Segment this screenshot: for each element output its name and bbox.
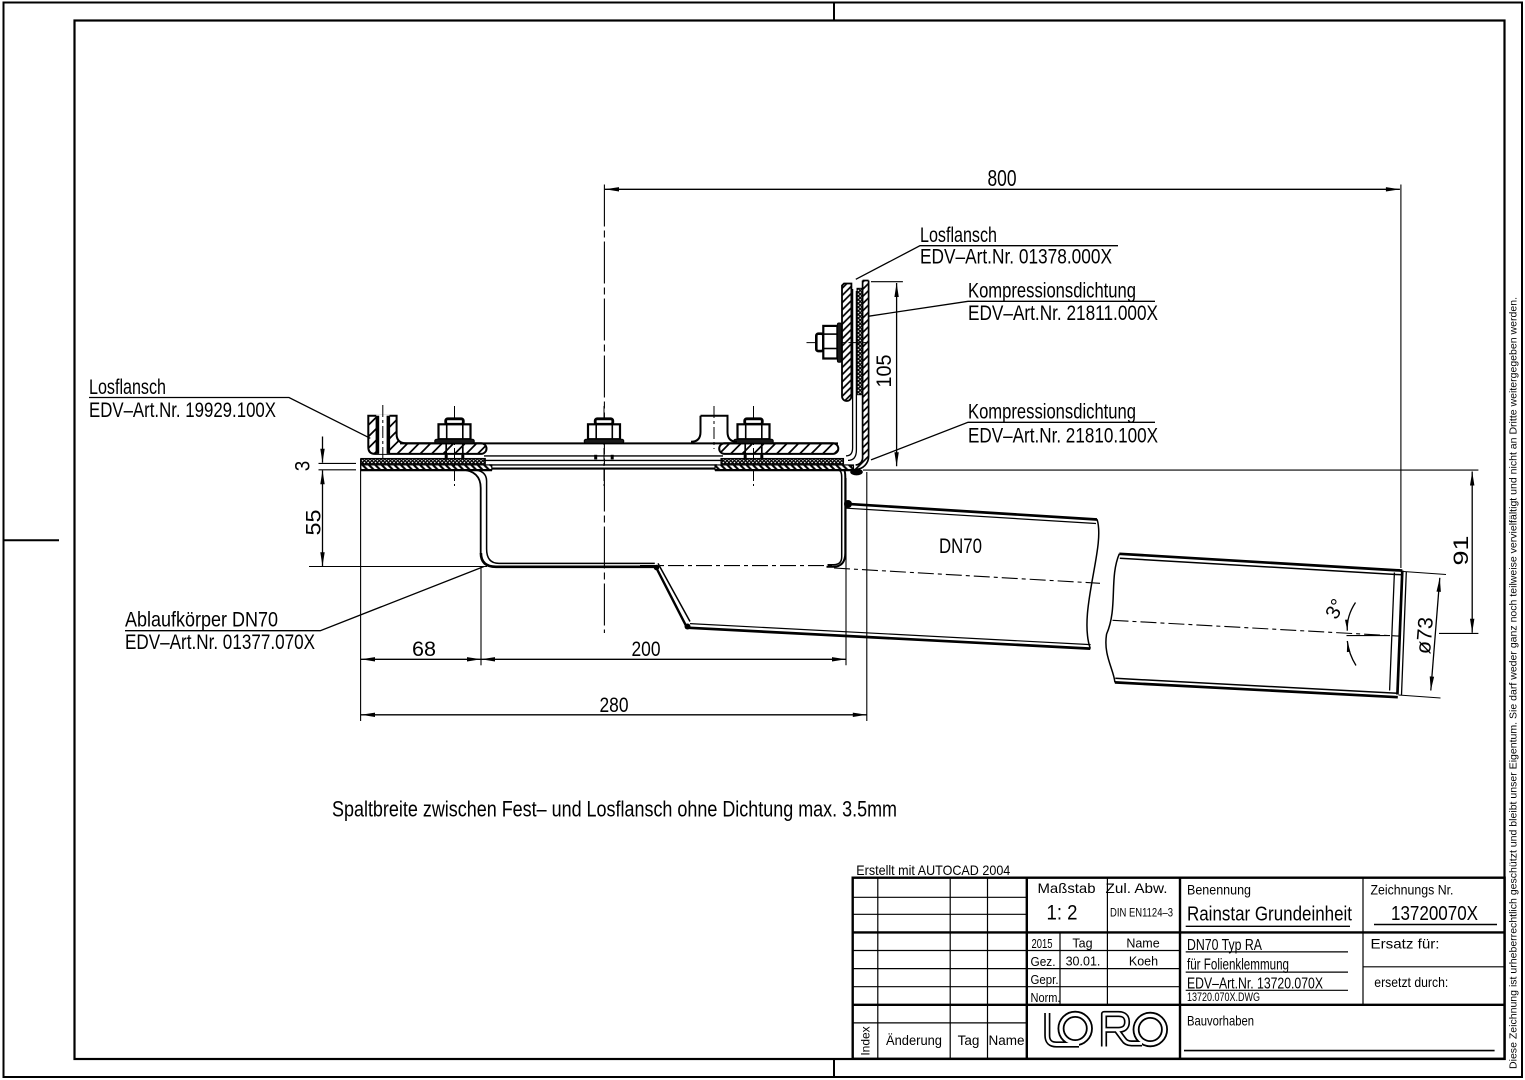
- svg-text:Tag: Tag: [1072, 936, 1092, 950]
- svg-text:Maßstab: Maßstab: [1038, 880, 1096, 896]
- svg-text:DN70 Typ RA: DN70 Typ RA: [1187, 937, 1262, 954]
- svg-text:2015: 2015: [1032, 936, 1053, 951]
- svg-text:Zul. Abw.: Zul. Abw.: [1106, 880, 1168, 896]
- svg-text:Losflansch: Losflansch: [89, 376, 166, 399]
- svg-text:DIN EN1124–3: DIN EN1124–3: [1110, 906, 1173, 920]
- svg-text:Rainstar Grundeinheit: Rainstar Grundeinheit: [1187, 904, 1352, 926]
- svg-text:105: 105: [873, 355, 896, 388]
- svg-text:1: 2: 1: 2: [1047, 902, 1078, 925]
- svg-text:Spaltbreite zwischen Fest–: Spaltbreite zwischen Fest– und Losflansc…: [332, 797, 897, 822]
- svg-text:Norm.: Norm.: [1031, 991, 1061, 1005]
- svg-text:Ersatz für:: Ersatz für:: [1371, 936, 1440, 952]
- svg-text:Losflansch: Losflansch: [920, 224, 997, 247]
- svg-text:68: 68: [412, 638, 436, 661]
- svg-text:EDV–Art.Nr. 21810.100X: EDV–Art.Nr. 21810.100X: [968, 424, 1158, 447]
- svg-text:Ablaufkörper DN70: Ablaufkörper DN70: [125, 609, 278, 632]
- svg-text:13720.070X.DWG: 13720.070X.DWG: [1187, 990, 1260, 1004]
- svg-text:Erstellt mit AUTOCAD 2004: Erstellt mit AUTOCAD 2004: [856, 862, 1010, 878]
- svg-text:für Folienklemmung: für Folienklemmung: [1187, 957, 1289, 974]
- svg-text:Gepr.: Gepr.: [1031, 973, 1059, 987]
- svg-text:Kompressionsdichtung: Kompressionsdichtung: [968, 280, 1136, 303]
- svg-text:Benennung: Benennung: [1187, 882, 1251, 898]
- svg-text:ersetzt durch:: ersetzt durch:: [1374, 974, 1448, 990]
- svg-text:Gez.: Gez.: [1031, 955, 1056, 969]
- svg-text:DN70: DN70: [939, 535, 982, 558]
- svg-text:200: 200: [632, 638, 661, 661]
- svg-text:EDV–Art.Nr. 01378.000X: EDV–Art.Nr. 01378.000X: [920, 246, 1112, 269]
- svg-text:Zeichnungs Nr.: Zeichnungs Nr.: [1371, 882, 1454, 898]
- svg-text:Diese Zeichnung ist urheberrec: Diese Zeichnung ist urheberrechtlich ges…: [1508, 297, 1520, 1069]
- svg-text:280: 280: [600, 694, 629, 717]
- svg-text:Änderung: Änderung: [886, 1033, 942, 1048]
- svg-text:EDV–Art.Nr. 19929.100X: EDV–Art.Nr. 19929.100X: [89, 399, 276, 422]
- svg-text:3: 3: [292, 461, 315, 472]
- svg-text:55: 55: [303, 510, 326, 536]
- svg-text:ø73: ø73: [1412, 616, 1438, 655]
- svg-text:30.01.: 30.01.: [1066, 954, 1101, 968]
- svg-text:Tag: Tag: [958, 1033, 980, 1048]
- svg-text:Kompressionsdichtung: Kompressionsdichtung: [968, 400, 1136, 423]
- svg-text:800: 800: [988, 165, 1017, 191]
- svg-text:13720070X: 13720070X: [1391, 903, 1478, 925]
- svg-text:Name: Name: [1126, 936, 1159, 950]
- svg-text:Bauvorhaben: Bauvorhaben: [1187, 1013, 1254, 1029]
- svg-text:Index: Index: [859, 1026, 873, 1055]
- svg-text:EDV–Art.Nr. 21811.000X: EDV–Art.Nr. 21811.000X: [968, 302, 1158, 325]
- svg-text:Koeh: Koeh: [1129, 954, 1158, 968]
- svg-text:Name: Name: [988, 1033, 1024, 1048]
- svg-text:EDV–Art.Nr. 01377.070X: EDV–Art.Nr. 01377.070X: [125, 631, 315, 654]
- svg-text:91: 91: [1450, 536, 1473, 566]
